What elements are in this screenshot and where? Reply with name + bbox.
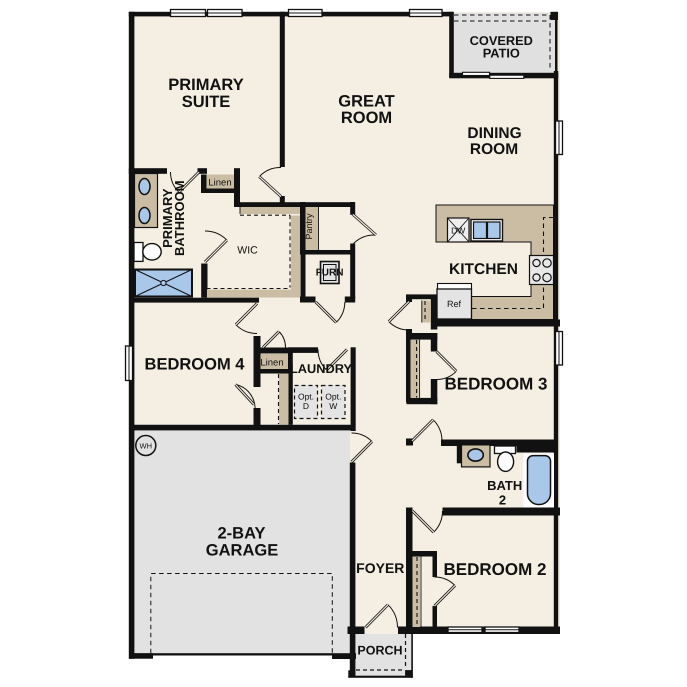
svg-text:FOYER: FOYER [356, 560, 404, 576]
svg-text:Linen: Linen [260, 358, 283, 369]
svg-text:2: 2 [499, 493, 506, 508]
svg-text:PRIMARY: PRIMARY [168, 76, 243, 94]
svg-text:BEDROOM 3: BEDROOM 3 [445, 375, 548, 394]
svg-text:Ref: Ref [447, 299, 462, 309]
svg-text:LAUNDRY: LAUNDRY [290, 361, 353, 376]
svg-text:BEDROOM 4: BEDROOM 4 [145, 356, 246, 374]
svg-text:W: W [329, 401, 337, 411]
svg-text:ROOM: ROOM [470, 141, 518, 158]
svg-text:PATIO: PATIO [483, 45, 520, 60]
svg-text:WIC: WIC [237, 245, 258, 257]
svg-text:Pantry: Pantry [304, 213, 314, 240]
svg-text:Linen: Linen [208, 177, 231, 188]
svg-text:WH: WH [140, 442, 153, 451]
svg-text:FURN: FURN [316, 268, 344, 279]
svg-text:BEDROOM 2: BEDROOM 2 [444, 560, 547, 579]
svg-text:KITCHEN: KITCHEN [449, 261, 518, 278]
svg-text:GREAT: GREAT [338, 93, 395, 111]
svg-text:PORCH: PORCH [357, 644, 402, 658]
svg-text:2-BAY: 2-BAY [218, 525, 266, 543]
svg-text:ROOM: ROOM [341, 109, 392, 127]
svg-text:DW: DW [451, 226, 465, 236]
svg-text:Opt.: Opt. [298, 392, 314, 402]
svg-text:Opt.: Opt. [325, 392, 341, 402]
svg-text:BATH: BATH [487, 478, 522, 493]
svg-text:SUITE: SUITE [182, 93, 231, 111]
svg-text:D: D [303, 401, 309, 411]
svg-text:BATHROOM: BATHROOM [172, 180, 187, 256]
svg-text:DINING: DINING [467, 125, 521, 142]
svg-text:GARAGE: GARAGE [206, 542, 278, 560]
